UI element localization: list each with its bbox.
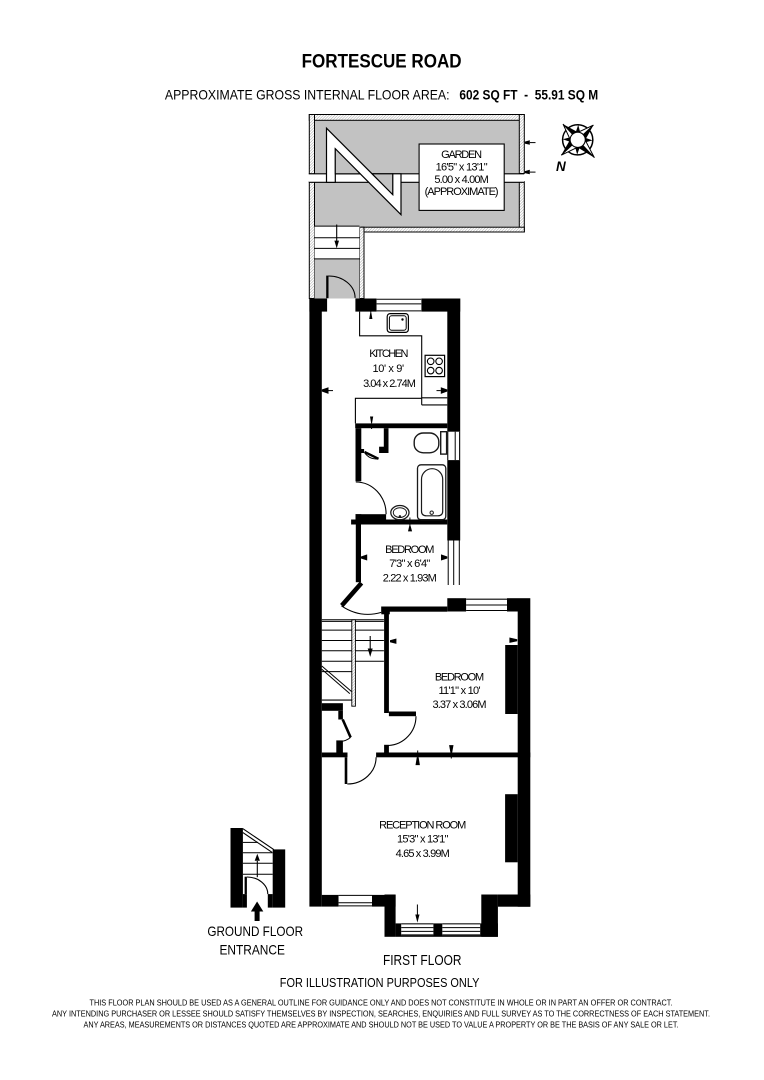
svg-text:BEDROOM: BEDROOM [435,672,484,684]
svg-text:FORTESCUE ROAD: FORTESCUE ROAD [302,51,462,73]
svg-text:15'3" x 13'1": 15'3" x 13'1" [397,834,448,846]
svg-text:FIRST FLOOR: FIRST FLOOR [383,952,462,969]
svg-text:FOR ILLUSTRATION PURPOSES ONLY: FOR ILLUSTRATION PURPOSES ONLY [280,975,480,990]
svg-text:ANY INTENDING PURCHASER OR LES: ANY INTENDING PURCHASER OR LESSEE SHOULD… [52,1008,710,1018]
svg-text:16'5" x 13'1": 16'5" x 13'1" [436,162,488,174]
svg-text:2.22 x 1.93M: 2.22 x 1.93M [383,573,437,585]
svg-text:602 SQ FT - 55.91 SQ M: 602 SQ FT - 55.91 SQ M [459,87,598,103]
svg-text:ENTRANCE: ENTRANCE [219,942,285,958]
svg-text:3.04 x 2.74M: 3.04 x 2.74M [363,378,416,390]
svg-text:4.65 x 3.99M: 4.65 x 3.99M [396,848,450,860]
svg-text:(APPROXIMATE): (APPROXIMATE) [425,186,499,198]
svg-text:APPROXIMATE GROSS INTERNAL FLO: APPROXIMATE GROSS INTERNAL FLOOR AREA: [165,87,450,103]
svg-text:KITCHEN: KITCHEN [369,348,408,360]
svg-text:ANY AREAS, MEASUREMENTS OR DIS: ANY AREAS, MEASUREMENTS OR DISTANCES QUO… [84,1019,679,1029]
svg-text:GROUND FLOOR: GROUND FLOOR [207,923,303,939]
svg-text:N: N [556,159,566,174]
svg-text:3.37 x 3.06M: 3.37 x 3.06M [432,699,486,711]
svg-text:THIS FLOOR PLAN SHOULD BE USED: THIS FLOOR PLAN SHOULD BE USED AS A GENE… [90,997,673,1007]
svg-text:BEDROOM: BEDROOM [385,544,434,556]
svg-text:10' x 9': 10' x 9' [372,363,404,375]
svg-text:5.00 x 4.00M: 5.00 x 4.00M [434,174,489,186]
svg-text:RECEPTION ROOM: RECEPTION ROOM [379,819,466,831]
svg-text:GARDEN: GARDEN [441,149,482,161]
svg-text:11'1" x 10': 11'1" x 10' [438,685,480,697]
svg-text:7'3" x 6'4": 7'3" x 6'4" [389,558,430,570]
